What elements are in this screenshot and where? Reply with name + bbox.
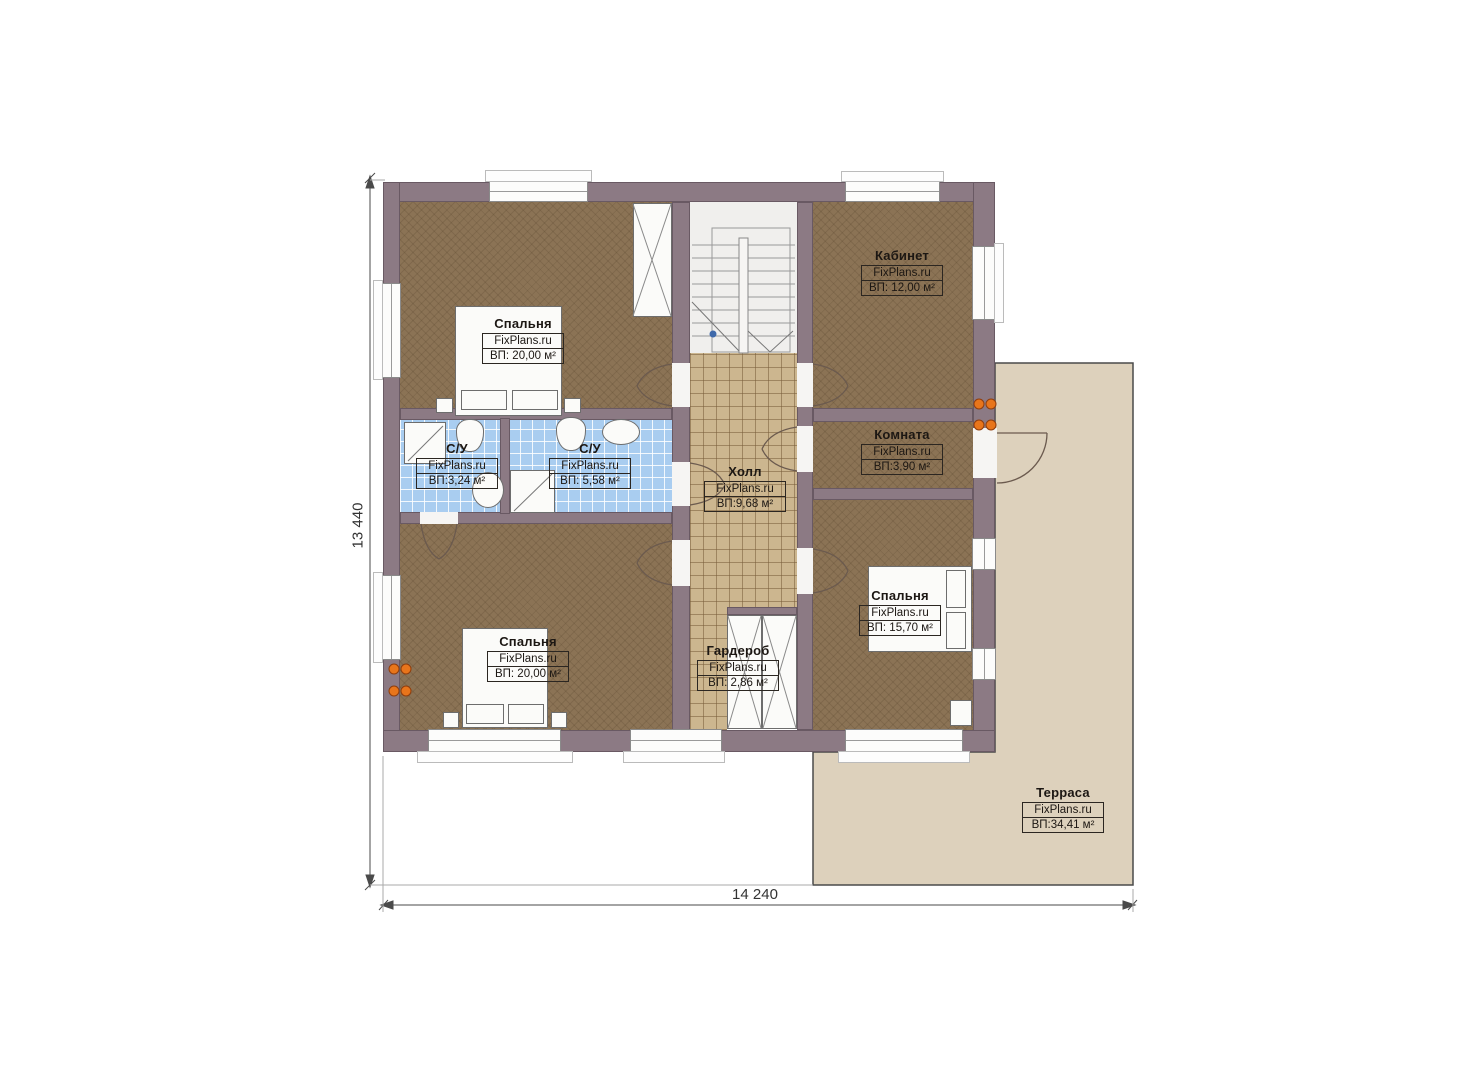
closet — [633, 203, 672, 317]
pillow — [466, 704, 504, 724]
room-name: Спальня — [845, 588, 955, 603]
watermark-text: FixPlans.ru — [698, 661, 778, 675]
dimension-width: 14 240 — [705, 886, 805, 903]
window — [972, 538, 996, 570]
floor-plan-canvas: Спальня FixPlans.ru ВП: 20,00 м² Кабинет… — [0, 0, 1474, 1080]
watermark-text: FixPlans.ru — [483, 334, 563, 348]
room-name: С/У — [535, 441, 645, 456]
pillow — [508, 704, 544, 724]
watermark-text: FixPlans.ru — [1023, 803, 1103, 817]
window — [630, 729, 722, 752]
room-area: ВП:3,24 м² — [417, 473, 497, 488]
nightstand — [551, 712, 567, 728]
room-area: ВП: 20,00 м² — [483, 348, 563, 363]
wall-office-room — [813, 408, 973, 422]
watermark-text: FixPlans.ru — [862, 445, 942, 459]
cabinet — [950, 700, 972, 726]
window — [972, 246, 996, 320]
door-opening — [797, 363, 813, 407]
room-name: Гардероб — [683, 643, 793, 658]
window-sill — [373, 572, 383, 663]
room-label-wardrobe: Гардероб FixPlans.ru ВП: 2,86 м² — [683, 643, 793, 691]
watermark-text: FixPlans.ru — [550, 459, 630, 473]
window-sill — [841, 171, 944, 182]
room-label-bath-large: С/У FixPlans.ru ВП: 5,58 м² — [535, 441, 645, 489]
watermark-text: FixPlans.ru — [860, 606, 940, 620]
room-label-bedroom-br: Спальня FixPlans.ru ВП: 15,70 м² — [845, 588, 955, 636]
room-label-small-room: Комната FixPlans.ru ВП:3,90 м² — [847, 427, 957, 475]
room-name: Холл — [690, 464, 800, 479]
watermark-text: FixPlans.ru — [705, 482, 785, 496]
window — [489, 181, 588, 202]
room-name: Терраса — [1008, 785, 1118, 800]
window-sill — [838, 751, 970, 763]
pillow — [512, 390, 558, 410]
window-sill — [417, 751, 573, 763]
window-sill — [994, 243, 1004, 323]
terrace-door-arc — [997, 433, 1047, 483]
room-label-hall: Холл FixPlans.ru ВП:9,68 м² — [690, 464, 800, 512]
room-label-bedroom-bl: Спальня FixPlans.ru ВП: 20,00 м² — [473, 634, 583, 682]
room-name: Кабинет — [847, 248, 957, 263]
wall-room-bedroom — [813, 488, 973, 500]
floor-office — [813, 202, 973, 408]
room-name: Спальня — [473, 634, 583, 649]
room-name: Комната — [847, 427, 957, 442]
room-label-terrace: Терраса FixPlans.ru ВП:34,41 м² — [1008, 785, 1118, 833]
watermark-text: FixPlans.ru — [488, 652, 568, 666]
room-name: Спальня — [468, 316, 578, 331]
window-sill — [373, 280, 383, 380]
window-sill — [623, 751, 725, 763]
room-label-bedroom-tl: Спальня FixPlans.ru ВП: 20,00 м² — [468, 316, 578, 364]
nightstand — [443, 712, 459, 728]
nightstand — [436, 398, 453, 413]
room-name: С/У — [402, 441, 512, 456]
room-label-office: Кабинет FixPlans.ru ВП: 12,00 м² — [847, 248, 957, 296]
room-area: ВП:9,68 м² — [705, 496, 785, 511]
door-opening — [797, 548, 813, 594]
wall-hall-wardrobe — [727, 607, 797, 615]
room-area: ВП: 20,00 м² — [488, 666, 568, 681]
door-opening — [420, 512, 458, 524]
room-area: ВП: 5,58 м² — [550, 473, 630, 488]
wall-exterior-left — [383, 182, 400, 752]
door-opening — [672, 363, 690, 407]
dimension-height: 13 440 — [350, 484, 367, 568]
room-area: ВП:3,90 м² — [862, 459, 942, 474]
window — [972, 648, 996, 680]
room-area: ВП: 2,86 м² — [698, 675, 778, 690]
window — [428, 729, 561, 752]
door-opening — [672, 462, 690, 506]
window — [845, 729, 963, 752]
room-area: ВП: 15,70 м² — [860, 620, 940, 635]
pillow — [461, 390, 507, 410]
room-area: ВП: 12,00 м² — [862, 280, 942, 295]
room-area: ВП:34,41 м² — [1023, 817, 1103, 832]
room-label-bath-small: С/У FixPlans.ru ВП:3,24 м² — [402, 441, 512, 489]
window — [845, 181, 940, 202]
watermark-text: FixPlans.ru — [417, 459, 497, 473]
window — [382, 575, 401, 660]
watermark-text: FixPlans.ru — [862, 266, 942, 280]
door-opening-terrace — [973, 428, 997, 478]
floor-stairwell — [690, 202, 797, 353]
door-opening — [672, 540, 690, 586]
nightstand — [564, 398, 581, 413]
window — [382, 283, 401, 378]
window-sill — [485, 170, 592, 182]
